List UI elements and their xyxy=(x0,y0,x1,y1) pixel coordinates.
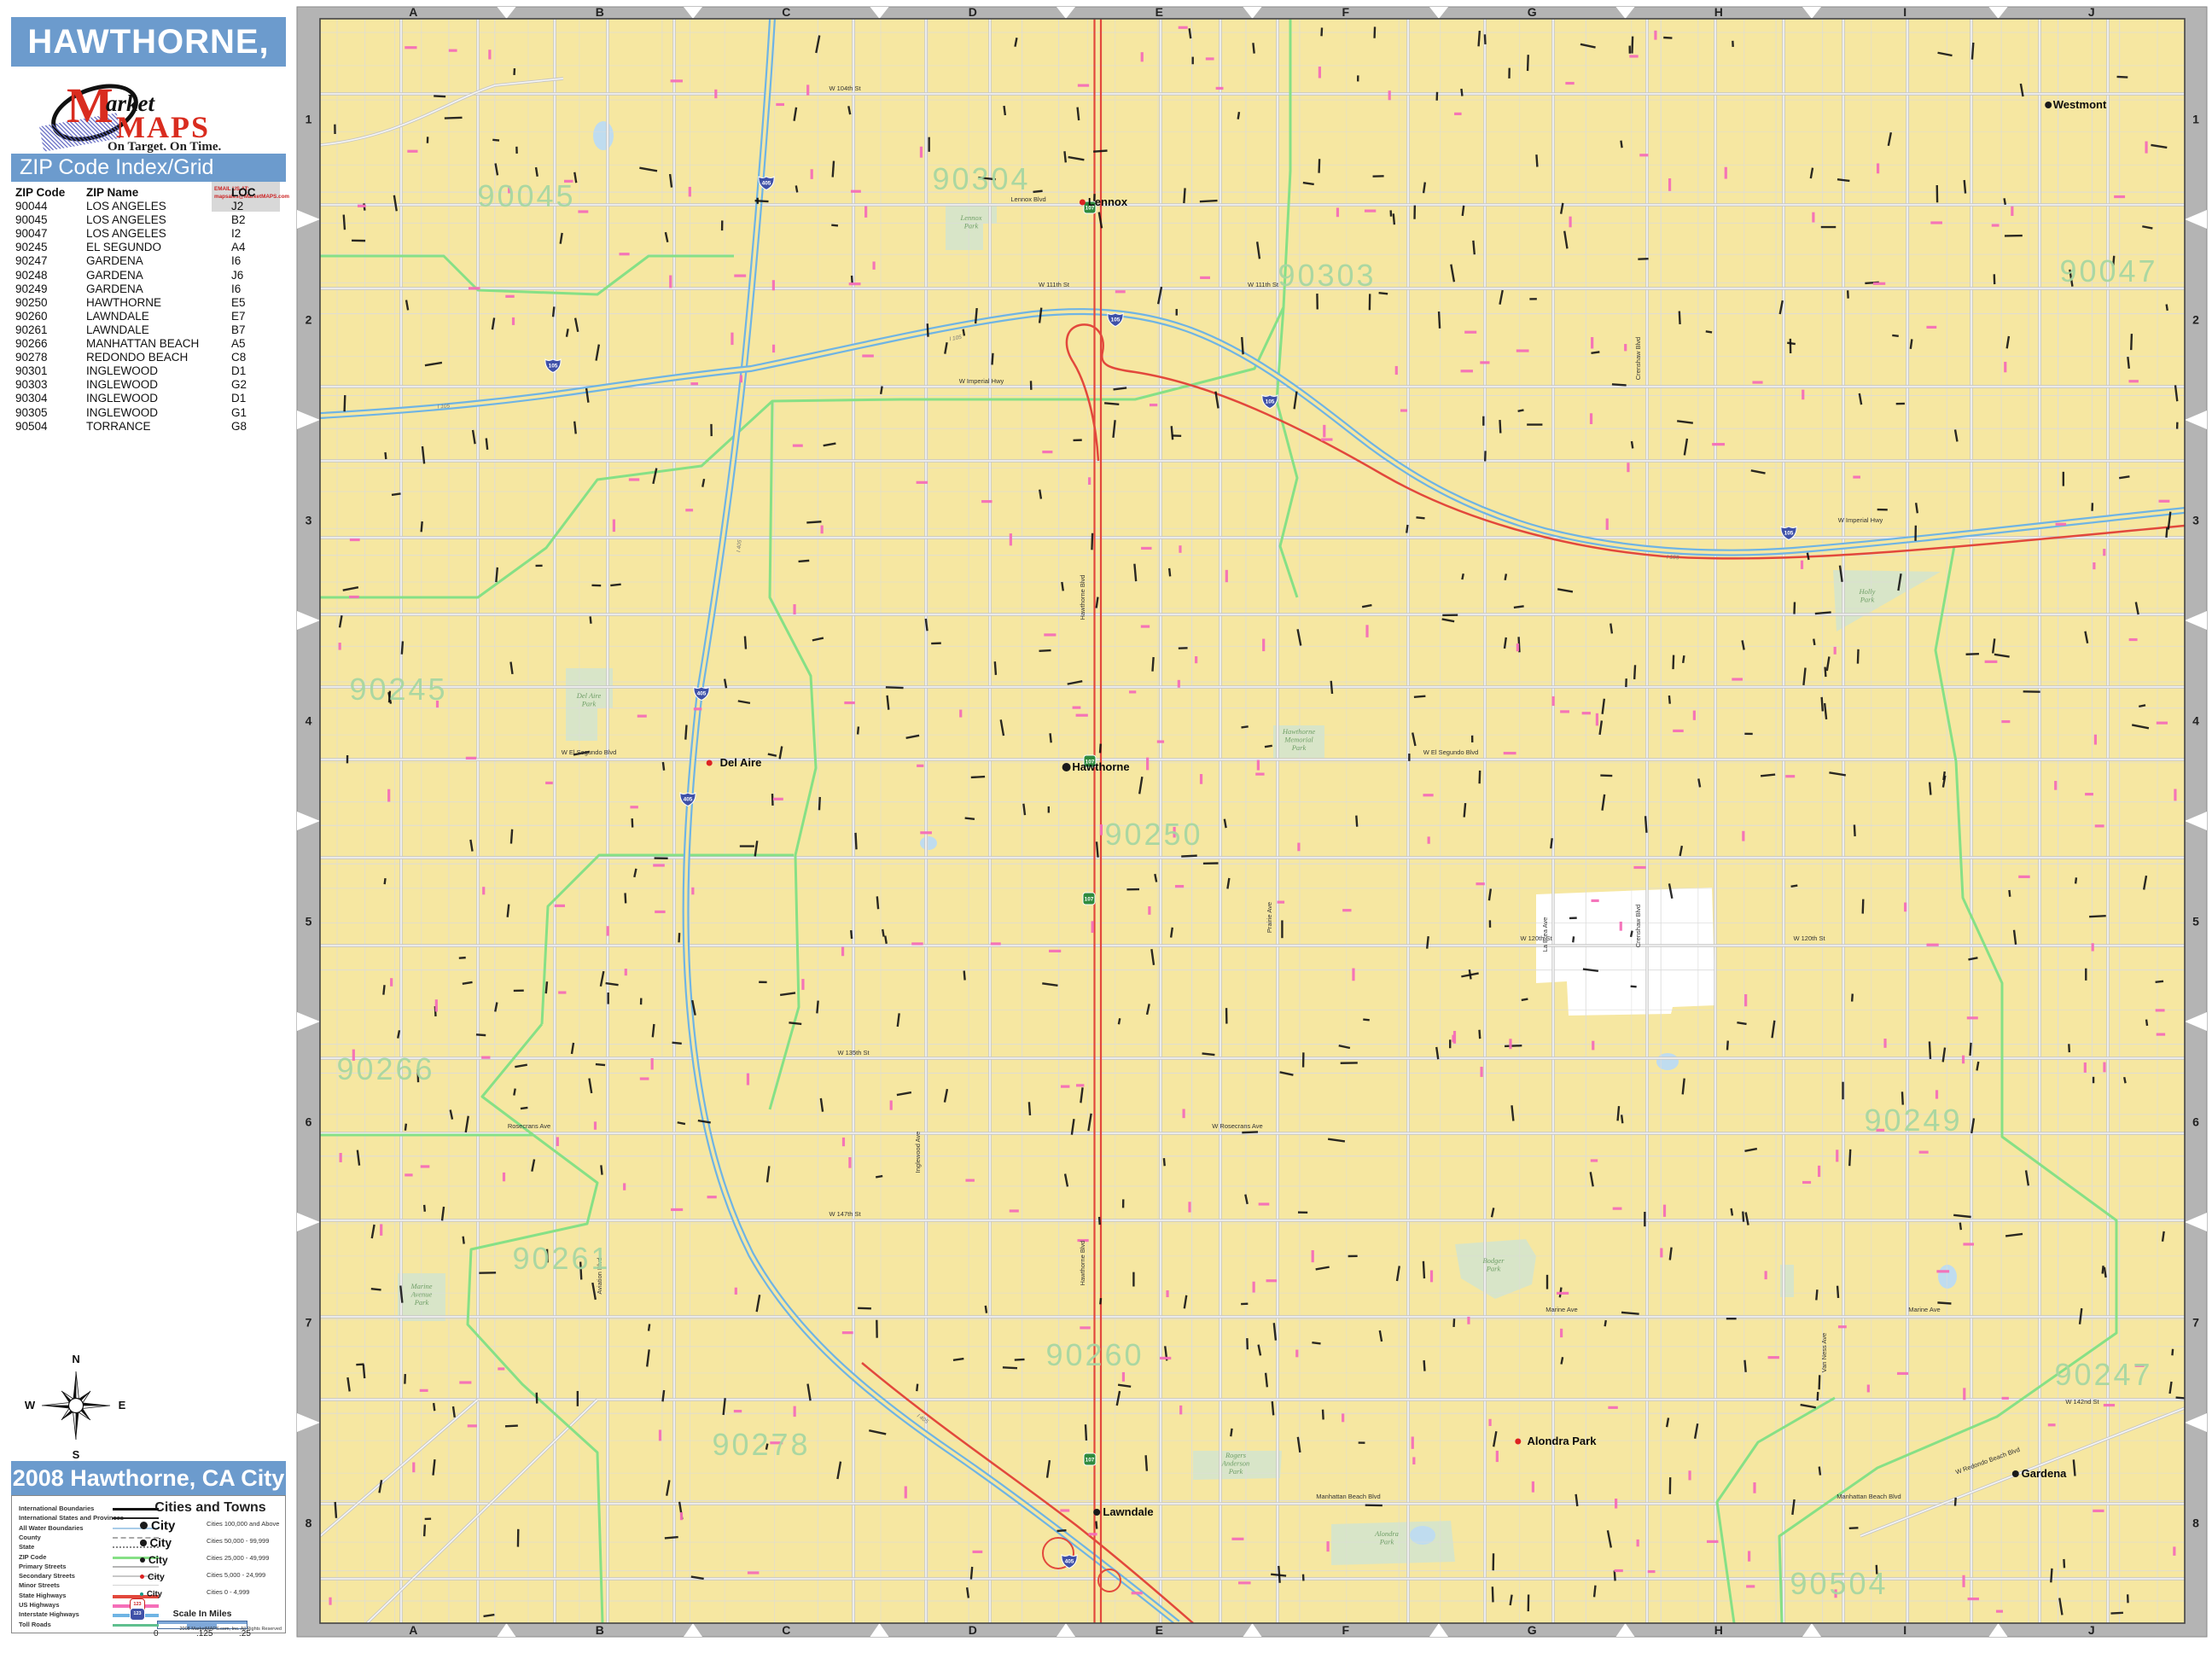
street-label: Inglewood Ave xyxy=(914,1132,922,1173)
svg-text:105: 105 xyxy=(1111,317,1121,323)
city-label: Gardena xyxy=(2022,1467,2068,1480)
city-label: Westmont xyxy=(2053,98,2107,111)
grid-col-top: J xyxy=(2088,5,2095,19)
zip-code-label: 90278 xyxy=(712,1427,810,1462)
street-label: Prairie Ave xyxy=(1266,902,1273,933)
street-label: W El Segundo Blvd xyxy=(562,748,617,756)
grid-col-bottom: C xyxy=(782,1623,790,1637)
city-map: I 405I 105I 105I 405I 105W 104th StLenno… xyxy=(0,0,2212,1659)
zip-code-label: 90504 xyxy=(1790,1566,1888,1601)
grid-row-right: 4 xyxy=(2192,714,2199,728)
grid-col-top: C xyxy=(782,5,790,19)
street-label: W 147th St xyxy=(829,1210,861,1218)
grid-row-left: 5 xyxy=(306,915,312,928)
svg-text:405: 405 xyxy=(697,691,707,697)
street-label: Marine Ave xyxy=(1545,1306,1577,1313)
street-label: W 120th St xyxy=(1793,934,1825,942)
grid-row-right: 3 xyxy=(2192,514,2199,527)
grid-row-right: 5 xyxy=(2192,915,2199,928)
grid-row-right: 7 xyxy=(2192,1316,2199,1330)
svg-text:405: 405 xyxy=(1065,1559,1074,1565)
state-route-shield-icon: 107 xyxy=(1083,893,1095,905)
street-label: W 111th St xyxy=(1039,281,1070,288)
street-label: La Brea Ave xyxy=(1541,917,1549,952)
grid-row-right: 1 xyxy=(2192,113,2199,126)
city-dot-icon xyxy=(1062,763,1071,771)
street-label: Crenshaw Blvd xyxy=(1634,337,1642,380)
city-dot-icon xyxy=(2045,102,2052,108)
grid-row-left: 4 xyxy=(306,714,312,728)
svg-text:105: 105 xyxy=(549,364,558,370)
grid-col-top: H xyxy=(1714,5,1723,19)
grid-col-bottom: A xyxy=(409,1623,417,1637)
grid-row-left: 1 xyxy=(306,113,312,126)
city-dot-icon xyxy=(1515,1439,1521,1445)
zip-code-label: 90260 xyxy=(1045,1337,1144,1372)
grid-row-right: 6 xyxy=(2192,1115,2199,1129)
grid-row-left: 8 xyxy=(306,1516,312,1530)
svg-text:405: 405 xyxy=(762,181,771,187)
grid-col-top: D xyxy=(969,5,977,19)
street-label: Manhattan Beach Blvd xyxy=(1316,1493,1380,1500)
zip-code-label: 90266 xyxy=(336,1051,434,1086)
street-label: Lennox Blvd xyxy=(1010,195,1045,203)
freeway-label: I 105 xyxy=(1667,555,1679,562)
street-label: Crenshaw Blvd xyxy=(1634,905,1642,947)
svg-text:405: 405 xyxy=(684,797,693,803)
zip-code-label: 90247 xyxy=(2054,1357,2152,1392)
zip-code-label: 90047 xyxy=(2059,253,2157,288)
grid-row-left: 6 xyxy=(306,1115,312,1129)
street-label: W Imperial Hwy xyxy=(1838,516,1883,524)
grid-col-bottom: G xyxy=(1528,1623,1537,1637)
state-route-shield-icon: 107 xyxy=(1084,1453,1096,1465)
city-dot-icon xyxy=(707,760,713,766)
street-label: Rosecrans Ave xyxy=(508,1122,550,1130)
street-label: Hawthorne Blvd xyxy=(1079,575,1086,620)
city-dot-icon xyxy=(1093,1509,1100,1516)
street-label: Van Ness Ave xyxy=(1820,1333,1828,1372)
grid-col-top: E xyxy=(1155,5,1163,19)
zip-code-label: 90303 xyxy=(1278,258,1376,293)
zip-code-label: 90045 xyxy=(477,178,575,213)
pond xyxy=(1656,1053,1679,1070)
pond xyxy=(920,836,937,850)
grid-col-bottom: F xyxy=(1342,1623,1349,1637)
grid-col-bottom: D xyxy=(969,1623,977,1637)
city-label: Hawthorne xyxy=(1072,760,1129,773)
grid-row-right: 2 xyxy=(2192,313,2199,327)
city-dot-icon xyxy=(2012,1470,2019,1477)
map-area: I 405I 105I 105I 405I 105W 104th StLenno… xyxy=(320,19,2191,1623)
street-label: W Rosecrans Ave xyxy=(1212,1122,1262,1130)
zip-code-label: 90304 xyxy=(932,161,1030,196)
grid-col-bottom: H xyxy=(1714,1623,1723,1637)
grid-row-left: 2 xyxy=(306,313,312,327)
zip-code-label: 90245 xyxy=(349,672,447,707)
street-label: W 135th St xyxy=(837,1049,870,1057)
street-label: W 104th St xyxy=(829,84,861,92)
street-label: Marine Ave xyxy=(1908,1306,1940,1313)
freeway-label: I 105 xyxy=(437,403,450,410)
street-label: W El Segundo Blvd xyxy=(1423,748,1479,756)
city-label: Del Aire xyxy=(720,756,762,769)
grid-col-top: G xyxy=(1528,5,1537,19)
zip-code-label: 90249 xyxy=(1864,1103,1962,1138)
grid-row-right: 8 xyxy=(2192,1516,2199,1530)
street-label: W Imperial Hwy xyxy=(959,377,1004,385)
street-label: Hawthorne Blvd xyxy=(1079,1241,1086,1286)
svg-text:105: 105 xyxy=(1784,531,1794,537)
zip-code-label: 90250 xyxy=(1104,817,1202,852)
page: HAWTHORNE, CA M arket MAPS On Target. On… xyxy=(0,0,2212,1659)
grid-col-top: I xyxy=(1903,5,1906,19)
street-label: W 142nd St xyxy=(2065,1398,2099,1406)
city-dot-icon xyxy=(1080,200,1086,206)
city-label: Alondra Park xyxy=(1528,1435,1598,1447)
grid-col-top: B xyxy=(596,5,604,19)
svg-text:105: 105 xyxy=(1266,399,1275,405)
svg-text:107: 107 xyxy=(1085,897,1094,903)
grid-row-left: 3 xyxy=(306,514,312,527)
street-label: Manhattan Beach Blvd xyxy=(1837,1493,1901,1500)
svg-text:107: 107 xyxy=(1086,1458,1095,1464)
grid-col-bottom: I xyxy=(1903,1623,1906,1637)
city-label: Lawndale xyxy=(1103,1505,1153,1518)
grid-col-bottom: J xyxy=(2088,1623,2095,1637)
grid-col-bottom: B xyxy=(596,1623,604,1637)
grid-col-top: A xyxy=(409,5,417,19)
grid-col-bottom: E xyxy=(1155,1623,1163,1637)
pond xyxy=(1938,1265,1957,1289)
zip-code-label: 90261 xyxy=(512,1241,610,1276)
street-label: W 111th St xyxy=(1248,281,1279,288)
grid-col-top: F xyxy=(1342,5,1349,19)
city-label: Lennox xyxy=(1088,195,1128,208)
park-label: HollyPark xyxy=(1859,587,1876,604)
grid-row-left: 7 xyxy=(306,1316,312,1330)
pond xyxy=(593,121,614,150)
